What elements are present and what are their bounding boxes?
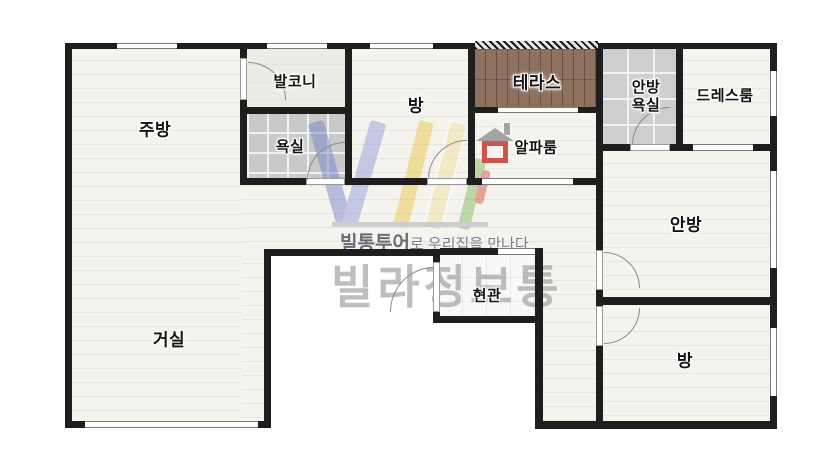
dress-room-window	[770, 71, 777, 116]
room-label-entrance: 현관	[473, 285, 502, 306]
window	[267, 43, 327, 49]
wall-segment	[240, 107, 352, 114]
wall-segment	[468, 43, 475, 185]
wall-segment	[258, 421, 271, 428]
house-icon-body	[482, 141, 508, 163]
wall-segment	[468, 178, 482, 185]
wall-segment	[596, 297, 777, 305]
wall-segment	[177, 43, 267, 49]
room-label-bathroom: 욕실	[276, 136, 305, 157]
floor-plan: 빌통투어로 우리집을 만나다 빌라정보통	[0, 0, 840, 472]
window	[370, 43, 433, 49]
dress-room-opening	[693, 144, 753, 151]
room-label-balcony: 발코니	[274, 71, 317, 92]
window	[117, 43, 177, 49]
floor-kitchen-living	[68, 46, 242, 423]
wall-segment	[535, 421, 777, 429]
room-label-master-bathroom: 안방 욕실	[632, 79, 661, 115]
room-label-alpha-room: 알파룸	[515, 137, 558, 158]
house-icon-roof	[476, 128, 514, 141]
room-label-bedroom-top: 방	[408, 92, 424, 117]
wall-segment	[65, 421, 85, 428]
wall-segment	[433, 316, 543, 323]
wall-segment	[240, 43, 247, 58]
room-label-bedroom-bottom: 방	[677, 347, 693, 372]
master-bathroom-label-line2: 욕실	[632, 97, 661, 114]
wall-segment	[676, 43, 683, 151]
master-bedroom-window	[770, 171, 777, 268]
living-room-window	[85, 421, 258, 428]
wall-segment	[345, 43, 352, 185]
wall-segment	[240, 178, 306, 185]
wall-segment	[433, 249, 440, 262]
wall-segment	[535, 248, 543, 429]
wall-segment	[670, 144, 693, 151]
bedroom-top-door-leaf	[427, 178, 467, 185]
wall-segment	[264, 249, 440, 256]
terrace-window	[498, 107, 578, 113]
wall-segment	[264, 249, 271, 428]
watermark-brand-text: 빌라정보통	[331, 251, 563, 317]
balcony-door-leaf	[240, 58, 247, 100]
terrace-open-edge-hatch	[475, 41, 598, 49]
house-icon	[476, 122, 514, 164]
bedroom-bottom-door-leaf	[596, 306, 603, 346]
alpha-room-window	[482, 178, 573, 185]
room-label-living-room: 거실	[153, 326, 185, 351]
wall-segment	[770, 43, 777, 71]
wall-segment	[65, 43, 117, 49]
bedroom-bottom-window	[770, 328, 777, 396]
wall-segment	[65, 43, 72, 428]
master-bathroom-door-leaf	[630, 144, 670, 151]
room-label-kitchen: 주방	[139, 116, 171, 141]
wall-segment	[596, 144, 630, 151]
room-label-master-bedroom: 안방	[670, 211, 702, 236]
entrance-door-leaf	[433, 262, 440, 312]
entry-door-opening	[498, 248, 535, 255]
room-label-terrace: 테라스	[513, 69, 561, 94]
wall-segment	[753, 144, 777, 151]
master-bathroom-label-line1: 안방	[632, 79, 661, 96]
wall-segment	[468, 107, 498, 113]
master-bedroom-door-leaf	[596, 250, 603, 290]
wall-segment	[440, 248, 498, 255]
wall-segment	[596, 346, 603, 429]
room-label-dress-room: 드레스룸	[696, 85, 753, 106]
logo-underline-bar	[332, 222, 488, 227]
wall-segment	[598, 43, 777, 49]
wall-segment	[345, 178, 427, 185]
